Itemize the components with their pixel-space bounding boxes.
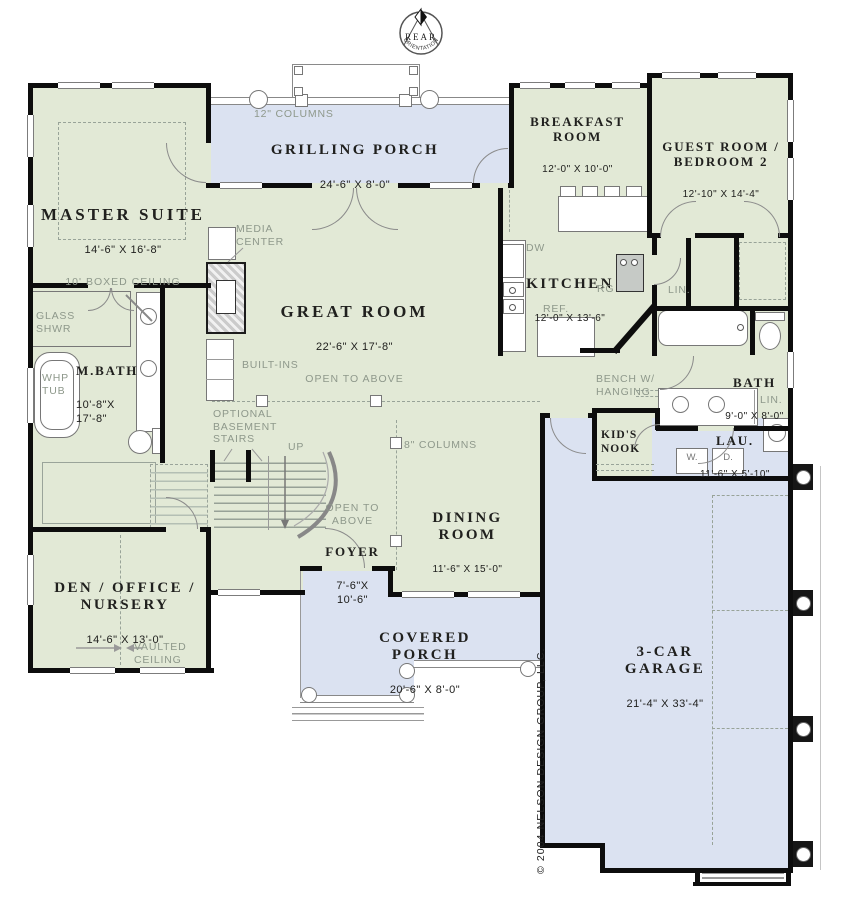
dashed-line [712,610,788,611]
garage-post [793,716,813,742]
column [409,87,418,96]
room-name: DEN / OFFICE / NURSERY [45,580,205,614]
toilet-tank [755,312,785,321]
room-dims: 20'-6" X 8'-0" [345,683,505,697]
compass-orientation-text: ORIENTATION [402,37,440,52]
faucet-icon [509,304,516,311]
room-dims: 22'-6" X 17'-8" [262,340,447,354]
annotation-vaulted-ceiling: VAULTED CEILING [134,641,186,666]
annotation-built-ins: BUILT-INS [242,359,299,372]
room-label-master-suite: MASTER SUITE 14'-6" X 16'-8" 10' BOXED C… [38,187,208,307]
compass-needle-icon [415,9,421,25]
room-name: COVERED PORCH [345,630,505,664]
stair-divider [268,456,269,530]
column [390,437,402,449]
side-porch-edge [820,466,821,870]
window [112,82,154,89]
window [58,82,100,89]
porch-column [520,661,536,677]
room-label-master-bath: M.BATH 10'-8"X 17'-8" [76,346,148,444]
copyright-text: © 2004 NELSON DESIGN GROUP, LLC. [535,647,547,874]
floor-plan: W. D. MASTER SUITE 14'-6" X 16'-8" 10' B… [0,0,850,900]
room-dims: 21'-4" X 33'-4" [600,697,730,711]
room-label-garage: 3-CAR GARAGE 21'-4" X 33'-4" [600,626,730,729]
garage-door [702,877,784,879]
room-label-great-room: GREAT ROOM 22'-6" X 17'-8" OPEN TO ABOVE [262,284,447,404]
vanity-sink [672,396,689,413]
room-dims: 12'-10" X 14'-4" [652,188,790,201]
wall-segment [580,348,620,353]
window [520,82,550,89]
window [718,72,756,79]
annotation-glass-shower: GLASS SHWR [36,310,75,335]
wall-segment [686,238,691,308]
media-center-niche [208,227,236,260]
window [612,82,640,89]
firebox [216,280,236,314]
wall-segment [210,450,215,482]
wall-segment [734,238,739,308]
room-dims: 12'-0" X 10'-0" [515,163,640,176]
compass-line [421,14,438,45]
wall-segment [160,288,165,463]
room-name: BREAKFAST ROOM [515,115,640,144]
dashed-line [509,190,510,232]
window [27,205,34,247]
faucet-icon [509,287,516,294]
annotation-dishwasher: DW [526,242,545,255]
room-note: OPEN TO ABOVE [262,373,447,386]
room-name: 3-CAR GARAGE [600,644,730,678]
room-name: GUEST ROOM / BEDROOM 2 [652,140,790,169]
annotation-media-center: MEDIA CENTER [236,223,284,248]
wall-segment [28,668,214,673]
wall-segment [788,487,793,873]
room-name: M.BATH [76,364,148,379]
wall-segment [498,188,503,356]
burner-icon [631,259,638,266]
compass-rear-text: REAR [405,32,437,42]
garage-post [793,590,813,616]
built-ins-shelf [206,339,234,401]
porch-column [420,90,439,109]
burner-icon [620,259,627,266]
wall-segment [246,450,251,482]
window [140,667,185,674]
annotation-whp-tub: WHP TUB [42,372,69,397]
room-dims: 7'-6"X 10'-6" [305,579,400,608]
annotation-12in-columns: 12" COLUMNS [254,108,334,121]
room-label-kitchen: KITCHEN 12'-0" X 13'-6" [522,258,618,343]
wall-segment [540,843,605,848]
column [294,87,303,96]
column [409,66,418,75]
room-dims: 14'-6" X 16'-8" [38,243,208,257]
master-sink [140,308,157,325]
wall-segment [750,311,755,355]
room-name: MASTER SUITE [38,205,208,224]
room-dims: 11'-6" X 5'-10" [685,468,785,481]
wall-segment [509,83,514,188]
annotation-bench: BENCH W/ HANGING [596,373,655,398]
window [27,368,34,423]
room-dims: 10'-8"X 17'-8" [76,398,148,427]
room-label-foyer: OPEN TO ABOVE FOYER 7'-6"X 10'-6" [305,483,400,625]
room-label-grilling-porch: GRILLING PORCH 24'-6" X 8'-0" [270,124,440,210]
room-name: DINING ROOM [410,510,525,544]
rear-orientation-compass: REAR ORIENTATION [400,9,442,54]
annotation-linen-hall: LIN. [668,284,690,297]
bar-counter [558,196,648,232]
corner-cabinet [42,462,156,524]
column [294,66,303,75]
room-name: FOYER [305,545,400,560]
room-dims: 24'-6" X 8'-0" [270,178,440,192]
room-name: GRILLING PORCH [270,142,440,159]
porch-column [249,90,268,109]
window [27,115,34,157]
room-name: LAU. [685,434,785,449]
door-opening [206,143,211,183]
wall-segment [656,306,793,311]
wall-segment [206,530,211,673]
shelf-line [206,359,234,360]
room-label-guest-room: GUEST ROOM / BEDROOM 2 12'-10" X 14'-4" [652,122,790,219]
room-name: GREAT ROOM [262,302,447,321]
garage-step-cut [543,845,600,873]
room-note: OPEN TO ABOVE [305,502,400,527]
grill-nook [292,64,420,98]
window [662,72,700,79]
room-note: 10' BOXED CEILING [38,276,208,289]
room-label-dining: DINING ROOM 11'-6" X 15'-0" [410,492,525,594]
window [220,182,262,189]
garage-post [793,841,813,867]
bathtub [658,310,748,346]
tub-faucet-icon [737,324,744,331]
room-dims: 12'-0" X 13'-6" [522,312,618,325]
room-label-breakfast: BREAKFAST ROOM 12'-0" X 10'-0" [515,97,640,194]
shelf-line [206,379,234,380]
room-label-covered-porch: COVERED PORCH 20'-6" X 8'-0" [345,612,505,715]
annotation-linen-bath: LIN. [760,394,782,407]
porch-edge [300,568,301,698]
compass-circle [400,12,442,54]
room-dims: 11'-6" X 15'-0" [410,563,525,576]
annotation-optional-basement: OPTIONAL BASEMENT STAIRS [213,408,277,446]
room-label-laundry: LAU. 11'-6" X 5'-10" [685,416,785,499]
annotation-8in-columns: 8" COLUMNS [404,439,477,452]
window [565,82,595,89]
wardrobe-outline [739,242,786,300]
toilet-bowl [759,322,781,350]
window [218,589,260,596]
room-label-kids-nook: KID'S NOOK [601,411,656,475]
wall-segment [693,882,791,886]
garage-post [793,464,813,490]
window [27,555,34,605]
dishwasher [502,244,524,278]
door-opening [480,183,508,188]
porch-column [301,687,317,703]
room-name: KID'S NOOK [601,429,656,457]
compass-needle-icon [421,9,427,25]
compass-line [404,14,421,45]
annotation-refrigerator: REF. [543,303,569,316]
annotation-range: RG [597,283,614,296]
annotation-up: UP [288,441,304,454]
window [70,667,115,674]
room-name: BATH [702,376,807,391]
